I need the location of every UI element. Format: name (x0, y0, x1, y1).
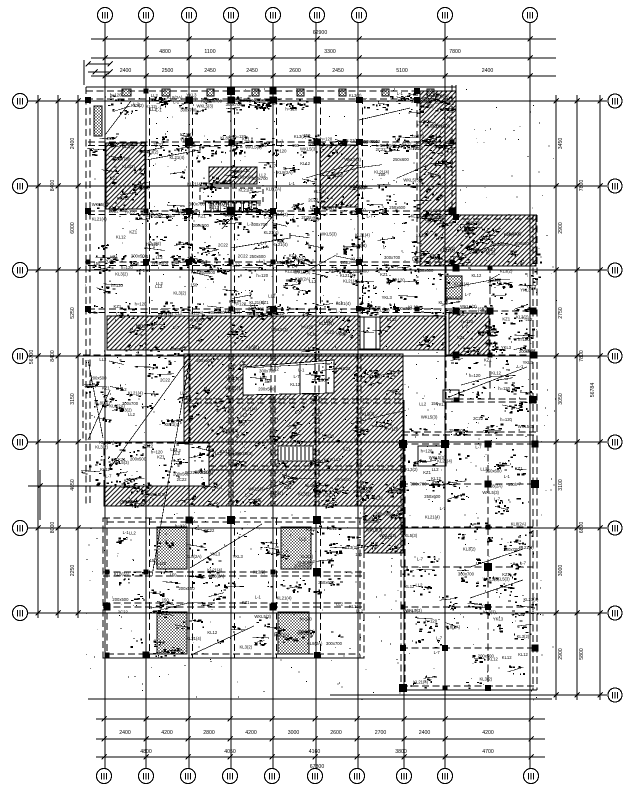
svg-text:WKL5(3): WKL5(3) (401, 533, 418, 538)
svg-text:LL2: LL2 (431, 208, 439, 213)
svg-text:56784: 56784 (590, 383, 596, 398)
svg-text:WKL5(3): WKL5(3) (294, 270, 311, 275)
svg-text:LL2: LL2 (240, 412, 248, 417)
svg-text:2C22: 2C22 (312, 412, 323, 417)
svg-text:WKL5(3): WKL5(3) (482, 490, 499, 495)
svg-text:KZ1: KZ1 (484, 358, 492, 363)
svg-text:KL12: KL12 (300, 161, 310, 166)
svg-text:KL12: KL12 (305, 483, 315, 488)
svg-text:2C22: 2C22 (218, 243, 229, 248)
svg-text:3050: 3050 (558, 393, 564, 405)
svg-text:L-7: L-7 (422, 154, 429, 159)
svg-text:2600: 2600 (330, 730, 342, 736)
svg-text:KL8(2A): KL8(2A) (274, 633, 290, 638)
svg-text:2250: 2250 (70, 565, 76, 577)
svg-text:L-7: L-7 (105, 474, 112, 479)
svg-text:L-7: L-7 (247, 222, 254, 227)
svg-text:KL21(4): KL21(4) (277, 596, 293, 601)
svg-text:WKL5(3): WKL5(3) (344, 157, 361, 162)
svg-text:8000: 8000 (50, 522, 56, 534)
svg-text:LL2: LL2 (299, 537, 307, 542)
svg-text:LL2: LL2 (156, 281, 164, 286)
svg-text:300x700: 300x700 (458, 571, 475, 576)
svg-text:h=120: h=120 (234, 134, 246, 139)
svg-text:2C22: 2C22 (301, 215, 312, 220)
svg-text:3000: 3000 (558, 565, 564, 577)
svg-text:KZ1: KZ1 (515, 466, 523, 471)
svg-text:LL2: LL2 (170, 447, 178, 452)
svg-text:WKL5(3): WKL5(3) (197, 104, 214, 109)
svg-text:2600: 2600 (289, 68, 301, 74)
svg-text:KL12: KL12 (207, 630, 217, 635)
svg-text:150: 150 (477, 307, 485, 312)
svg-text:2800: 2800 (203, 730, 215, 736)
svg-text:WKL5(3): WKL5(3) (227, 376, 244, 381)
svg-text:KL3(2): KL3(2) (298, 492, 311, 497)
svg-text:L-7: L-7 (293, 374, 300, 379)
svg-text:150: 150 (292, 143, 300, 148)
svg-text:2C22: 2C22 (160, 378, 171, 383)
svg-text:h=120: h=120 (386, 427, 398, 432)
svg-text:h=120: h=120 (110, 93, 122, 98)
svg-text:300x700: 300x700 (189, 202, 206, 207)
svg-text:4200: 4200 (482, 730, 494, 736)
svg-text:KL12: KL12 (387, 317, 397, 322)
svg-text:LL2: LL2 (128, 412, 136, 417)
svg-text:KL3(2): KL3(2) (463, 547, 476, 552)
svg-text:3450: 3450 (558, 138, 564, 150)
svg-text:KL21(4): KL21(4) (454, 282, 470, 287)
svg-text:2400: 2400 (482, 68, 494, 74)
svg-text:KL21(4): KL21(4) (264, 230, 280, 235)
svg-text:250x600: 250x600 (389, 205, 406, 210)
svg-text:KL21(4): KL21(4) (437, 459, 453, 464)
svg-text:4650: 4650 (70, 479, 76, 491)
svg-text:2750: 2750 (558, 307, 564, 319)
svg-text:L-7: L-7 (336, 308, 343, 313)
svg-text:KL21(4): KL21(4) (440, 248, 456, 253)
svg-text:7800: 7800 (579, 350, 585, 362)
svg-text:KL8(2A): KL8(2A) (123, 141, 139, 146)
svg-text:2C22: 2C22 (340, 366, 351, 371)
svg-text:WKL5(3): WKL5(3) (460, 304, 477, 309)
svg-text:2C22: 2C22 (185, 470, 196, 475)
svg-text:56700: 56700 (29, 350, 35, 365)
svg-text:250x600: 250x600 (485, 469, 502, 474)
svg-text:KL21(4): KL21(4) (523, 597, 539, 602)
svg-text:WKL5(3): WKL5(3) (421, 415, 438, 420)
svg-text:h=120: h=120 (498, 386, 510, 391)
svg-text:KZ1: KZ1 (102, 386, 110, 391)
svg-text:2500: 2500 (162, 68, 174, 74)
svg-text:WKL5(3): WKL5(3) (518, 424, 535, 429)
svg-text:300x700: 300x700 (114, 156, 131, 161)
svg-text:L-1: L-1 (397, 91, 404, 96)
svg-text:300x700: 300x700 (410, 482, 427, 487)
svg-text:KZ1: KZ1 (502, 317, 510, 322)
svg-text:4800: 4800 (140, 749, 152, 755)
svg-text:KL21(4): KL21(4) (336, 301, 352, 306)
svg-text:KL8(2A): KL8(2A) (186, 554, 202, 559)
svg-text:WKL5(3): WKL5(3) (403, 177, 420, 182)
svg-text:200x500: 200x500 (130, 456, 147, 461)
svg-text:250x600: 250x600 (254, 98, 271, 103)
svg-text:KL21(4): KL21(4) (164, 422, 180, 427)
svg-text:KL12: KL12 (116, 235, 126, 240)
svg-text:KL21(4): KL21(4) (188, 311, 204, 316)
svg-text:YKL3: YKL3 (493, 616, 504, 621)
svg-text:YKL3: YKL3 (122, 499, 133, 504)
svg-text:h=120: h=120 (301, 324, 313, 329)
svg-text:KL3(2): KL3(2) (253, 569, 266, 574)
svg-text:KL3(2): KL3(2) (294, 134, 307, 139)
svg-text:KL21(4): KL21(4) (319, 321, 335, 326)
svg-text:L-7: L-7 (465, 292, 472, 297)
svg-text:250x600: 250x600 (424, 494, 441, 499)
svg-text:h=120: h=120 (322, 434, 334, 439)
svg-text:L-1: L-1 (282, 395, 289, 400)
svg-text:2C22: 2C22 (177, 477, 188, 482)
svg-text:KL12: KL12 (382, 535, 392, 540)
svg-text:LL2: LL2 (309, 279, 317, 284)
svg-text:2400: 2400 (419, 730, 431, 736)
svg-text:h=120: h=120 (256, 273, 268, 278)
svg-text:KL21(4): KL21(4) (242, 407, 258, 412)
svg-text:2400: 2400 (120, 68, 132, 74)
svg-text:WKL5(3): WKL5(3) (300, 146, 317, 151)
svg-text:KL12: KL12 (518, 652, 528, 657)
svg-text:3000: 3000 (288, 730, 300, 736)
svg-text:2C22: 2C22 (238, 253, 249, 258)
svg-text:2900: 2900 (558, 648, 564, 660)
svg-text:L-1: L-1 (298, 368, 305, 373)
svg-text:WKL5(3): WKL5(3) (446, 295, 463, 300)
svg-text:h=120: h=120 (146, 242, 158, 247)
svg-text:KL3(2): KL3(2) (246, 344, 259, 349)
svg-text:WKL5(3): WKL5(3) (248, 487, 265, 492)
svg-text:200x500: 200x500 (90, 376, 107, 381)
svg-text:h=120: h=120 (421, 449, 433, 454)
svg-text:4200: 4200 (245, 730, 257, 736)
svg-text:300x700: 300x700 (326, 641, 343, 646)
svg-text:250x600: 250x600 (249, 254, 266, 259)
svg-text:3150: 3150 (70, 393, 76, 405)
svg-text:LL2: LL2 (356, 609, 364, 614)
svg-text:KL3(2): KL3(2) (146, 149, 159, 154)
svg-text:2C22: 2C22 (153, 142, 164, 147)
svg-text:KL12: KL12 (416, 233, 426, 238)
svg-text:KL12: KL12 (100, 467, 110, 472)
svg-text:L-7: L-7 (462, 324, 469, 329)
svg-text:KL8(2A): KL8(2A) (266, 187, 282, 192)
svg-text:L-7: L-7 (366, 214, 373, 219)
svg-text:KL3(2): KL3(2) (240, 644, 253, 649)
svg-text:2700: 2700 (375, 730, 387, 736)
svg-text:L-7: L-7 (173, 325, 180, 330)
svg-text:KL3(2): KL3(2) (480, 677, 493, 682)
svg-text:1100: 1100 (204, 49, 215, 55)
svg-text:YKL3: YKL3 (210, 552, 221, 557)
svg-text:LL2: LL2 (336, 602, 344, 607)
svg-text:h=120: h=120 (111, 283, 123, 288)
svg-text:150: 150 (150, 558, 158, 563)
svg-text:WKL5(3): WKL5(3) (149, 492, 166, 497)
svg-text:KL8(2A): KL8(2A) (167, 95, 183, 100)
svg-text:KL3(2): KL3(2) (115, 271, 128, 276)
svg-text:200x500: 200x500 (258, 387, 275, 392)
svg-text:KL3(2): KL3(2) (301, 554, 314, 559)
svg-text:L-7: L-7 (475, 444, 482, 449)
svg-text:h=120: h=120 (469, 373, 481, 378)
svg-text:150: 150 (190, 282, 198, 287)
svg-text:WKL5(3): WKL5(3) (358, 412, 375, 417)
svg-text:YKL3: YKL3 (382, 295, 393, 300)
svg-text:KZ1: KZ1 (457, 335, 465, 340)
svg-text:2400: 2400 (70, 138, 76, 150)
svg-text:KZ1: KZ1 (284, 485, 292, 490)
svg-text:KL12: KL12 (229, 299, 239, 304)
svg-text:KZ1: KZ1 (129, 230, 137, 235)
svg-text:6000: 6000 (70, 222, 76, 234)
svg-text:KL12: KL12 (290, 382, 300, 387)
svg-text:2C22: 2C22 (341, 260, 352, 265)
svg-text:8400: 8400 (50, 350, 56, 362)
svg-text:67800: 67800 (310, 764, 325, 770)
svg-text:200x500: 200x500 (178, 586, 195, 591)
svg-text:LL2: LL2 (99, 357, 107, 362)
svg-text:200x500: 200x500 (196, 358, 213, 363)
svg-text:LL2: LL2 (272, 367, 280, 372)
svg-text:L-1: L-1 (134, 102, 141, 107)
svg-text:4700: 4700 (482, 749, 494, 755)
svg-text:150: 150 (93, 261, 101, 266)
svg-text:250x600: 250x600 (353, 489, 370, 494)
svg-text:WKL5(3): WKL5(3) (271, 327, 288, 332)
svg-text:YKL3: YKL3 (436, 402, 447, 407)
svg-text:LL2: LL2 (180, 390, 188, 395)
svg-text:150: 150 (378, 172, 386, 177)
svg-text:KZ1: KZ1 (110, 176, 118, 181)
svg-text:LL2: LL2 (259, 173, 267, 178)
svg-text:KL12: KL12 (306, 526, 316, 531)
svg-text:L-1: L-1 (277, 139, 284, 144)
svg-text:2C22: 2C22 (308, 198, 319, 203)
svg-text:KL3(2): KL3(2) (517, 634, 530, 639)
svg-text:KL8(2A): KL8(2A) (511, 521, 527, 526)
svg-text:KL21(4): KL21(4) (519, 545, 535, 550)
svg-text:LL2: LL2 (480, 466, 488, 471)
svg-text:WKL5(3): WKL5(3) (225, 386, 242, 391)
svg-text:3800: 3800 (395, 749, 407, 755)
svg-text:KL12: KL12 (331, 457, 341, 462)
svg-text:LL2: LL2 (156, 255, 164, 260)
svg-text:L-7: L-7 (515, 482, 522, 487)
svg-text:250x600: 250x600 (492, 242, 509, 247)
svg-text:4200: 4200 (161, 730, 173, 736)
svg-text:WKL5(3): WKL5(3) (320, 231, 337, 236)
svg-text:LL2: LL2 (215, 451, 223, 456)
svg-text:KL12: KL12 (209, 205, 219, 210)
svg-text:2450: 2450 (246, 68, 258, 74)
svg-text:L-1: L-1 (216, 485, 223, 490)
svg-text:150: 150 (355, 552, 363, 557)
svg-text:KL21(4): KL21(4) (425, 514, 441, 519)
svg-text:L-7: L-7 (440, 506, 447, 511)
svg-text:250x600: 250x600 (225, 451, 242, 456)
svg-text:WKL5(3): WKL5(3) (493, 576, 510, 581)
svg-text:6800: 6800 (579, 522, 585, 534)
svg-text:h=120: h=120 (135, 302, 147, 307)
svg-text:h=120: h=120 (275, 148, 287, 153)
svg-text:L-1: L-1 (255, 595, 262, 600)
svg-text:KL21(4): KL21(4) (273, 242, 289, 247)
svg-text:L-7: L-7 (245, 493, 252, 498)
svg-text:300x700: 300x700 (384, 255, 401, 260)
svg-text:KZ1: KZ1 (198, 213, 206, 218)
svg-text:200x500: 200x500 (335, 477, 352, 482)
svg-text:2900: 2900 (558, 222, 564, 234)
svg-text:KL21(4): KL21(4) (238, 187, 254, 192)
svg-text:KL12: KL12 (491, 371, 501, 376)
svg-text:KL12: KL12 (488, 657, 498, 662)
svg-text:L-7: L-7 (440, 130, 447, 135)
svg-text:KL12: KL12 (405, 584, 415, 589)
svg-text:250x600: 250x600 (417, 268, 434, 273)
svg-text:300x700: 300x700 (251, 222, 268, 227)
svg-text:KL21(4): KL21(4) (186, 636, 202, 641)
svg-text:KZ1: KZ1 (343, 446, 351, 451)
svg-text:250x600: 250x600 (434, 123, 451, 128)
svg-text:250x600: 250x600 (375, 511, 392, 516)
svg-text:KL3(2): KL3(2) (311, 459, 324, 464)
svg-text:h=120: h=120 (320, 137, 332, 142)
svg-text:h=120: h=120 (500, 417, 512, 422)
svg-text:L-1: L-1 (173, 100, 180, 105)
svg-text:KL21(4): KL21(4) (169, 155, 185, 160)
svg-text:WKL5(3): WKL5(3) (112, 460, 129, 465)
svg-text:2C22: 2C22 (324, 329, 335, 334)
svg-text:2450: 2450 (332, 68, 344, 74)
svg-text:8400: 8400 (50, 180, 56, 192)
svg-text:L-7: L-7 (261, 241, 268, 246)
svg-text:3100: 3100 (558, 479, 564, 491)
svg-text:L-7: L-7 (494, 497, 501, 502)
svg-text:5250: 5250 (70, 307, 76, 319)
svg-text:L-1: L-1 (289, 181, 296, 186)
svg-text:YKL3: YKL3 (124, 210, 135, 215)
svg-text:LL2: LL2 (432, 467, 440, 472)
svg-text:4050: 4050 (224, 749, 236, 755)
svg-text:L-7: L-7 (436, 636, 443, 641)
svg-text:KL3(2): KL3(2) (270, 491, 283, 496)
svg-text:KL3(2): KL3(2) (173, 291, 186, 296)
svg-text:200x500: 200x500 (515, 241, 532, 246)
svg-text:WKL5(3): WKL5(3) (254, 614, 271, 619)
svg-text:YKL3: YKL3 (403, 610, 414, 615)
svg-text:200x500: 200x500 (112, 597, 129, 602)
svg-text:KZ1: KZ1 (261, 300, 269, 305)
svg-text:KL3(2): KL3(2) (95, 445, 108, 450)
svg-text:150: 150 (170, 573, 178, 578)
svg-text:200x500: 200x500 (193, 223, 210, 228)
svg-text:KL8(2A): KL8(2A) (307, 641, 323, 646)
svg-text:KL3(2): KL3(2) (500, 269, 513, 274)
svg-text:h=120: h=120 (121, 265, 133, 270)
svg-text:KL3(2): KL3(2) (314, 189, 327, 194)
svg-text:YKL3: YKL3 (523, 360, 534, 365)
svg-text:L-1: L-1 (123, 530, 130, 535)
svg-text:7800: 7800 (449, 49, 461, 55)
svg-text:KL3(2): KL3(2) (405, 467, 418, 472)
svg-text:KL8(2A): KL8(2A) (114, 572, 130, 577)
svg-text:KL12: KL12 (502, 655, 512, 660)
svg-text:KL3(2): KL3(2) (180, 132, 193, 137)
svg-text:L-7: L-7 (417, 556, 424, 561)
svg-text:5100: 5100 (396, 68, 408, 74)
svg-text:KZ1: KZ1 (380, 272, 388, 277)
svg-text:2400: 2400 (119, 730, 131, 736)
svg-text:3300: 3300 (324, 49, 336, 55)
svg-text:2450: 2450 (204, 68, 216, 74)
svg-text:KL21(4): KL21(4) (92, 217, 108, 222)
svg-text:4160: 4160 (309, 749, 321, 755)
svg-text:WKL5(3): WKL5(3) (366, 527, 383, 532)
svg-text:KZ1: KZ1 (423, 470, 431, 475)
svg-text:250x600: 250x600 (393, 157, 410, 162)
svg-text:YKL3: YKL3 (233, 554, 244, 559)
svg-text:LL2: LL2 (129, 530, 137, 535)
svg-text:L-1: L-1 (259, 258, 266, 263)
svg-text:200x500: 200x500 (188, 317, 205, 322)
svg-text:62900: 62900 (313, 30, 328, 36)
svg-text:LL2: LL2 (419, 401, 427, 406)
svg-text:KL12: KL12 (307, 331, 317, 336)
svg-text:L-1: L-1 (504, 474, 511, 479)
svg-text:2C22: 2C22 (118, 609, 129, 614)
svg-text:h=120: h=120 (518, 337, 530, 342)
svg-text:KZ1: KZ1 (488, 247, 496, 252)
svg-text:L-7: L-7 (434, 650, 441, 655)
svg-text:KL3(2): KL3(2) (516, 314, 529, 319)
svg-text:KL12: KL12 (472, 273, 482, 278)
svg-text:KL21(4): KL21(4) (507, 231, 523, 236)
svg-text:7800: 7800 (579, 180, 585, 192)
svg-text:4800: 4800 (159, 49, 171, 55)
svg-text:KZ1: KZ1 (242, 600, 250, 605)
svg-text:KL8(2A): KL8(2A) (209, 573, 225, 578)
svg-text:h=120: h=120 (300, 616, 312, 621)
svg-text:KL21(4): KL21(4) (340, 273, 356, 278)
svg-text:KL3(2): KL3(2) (122, 164, 135, 169)
svg-text:5800: 5800 (579, 648, 585, 660)
